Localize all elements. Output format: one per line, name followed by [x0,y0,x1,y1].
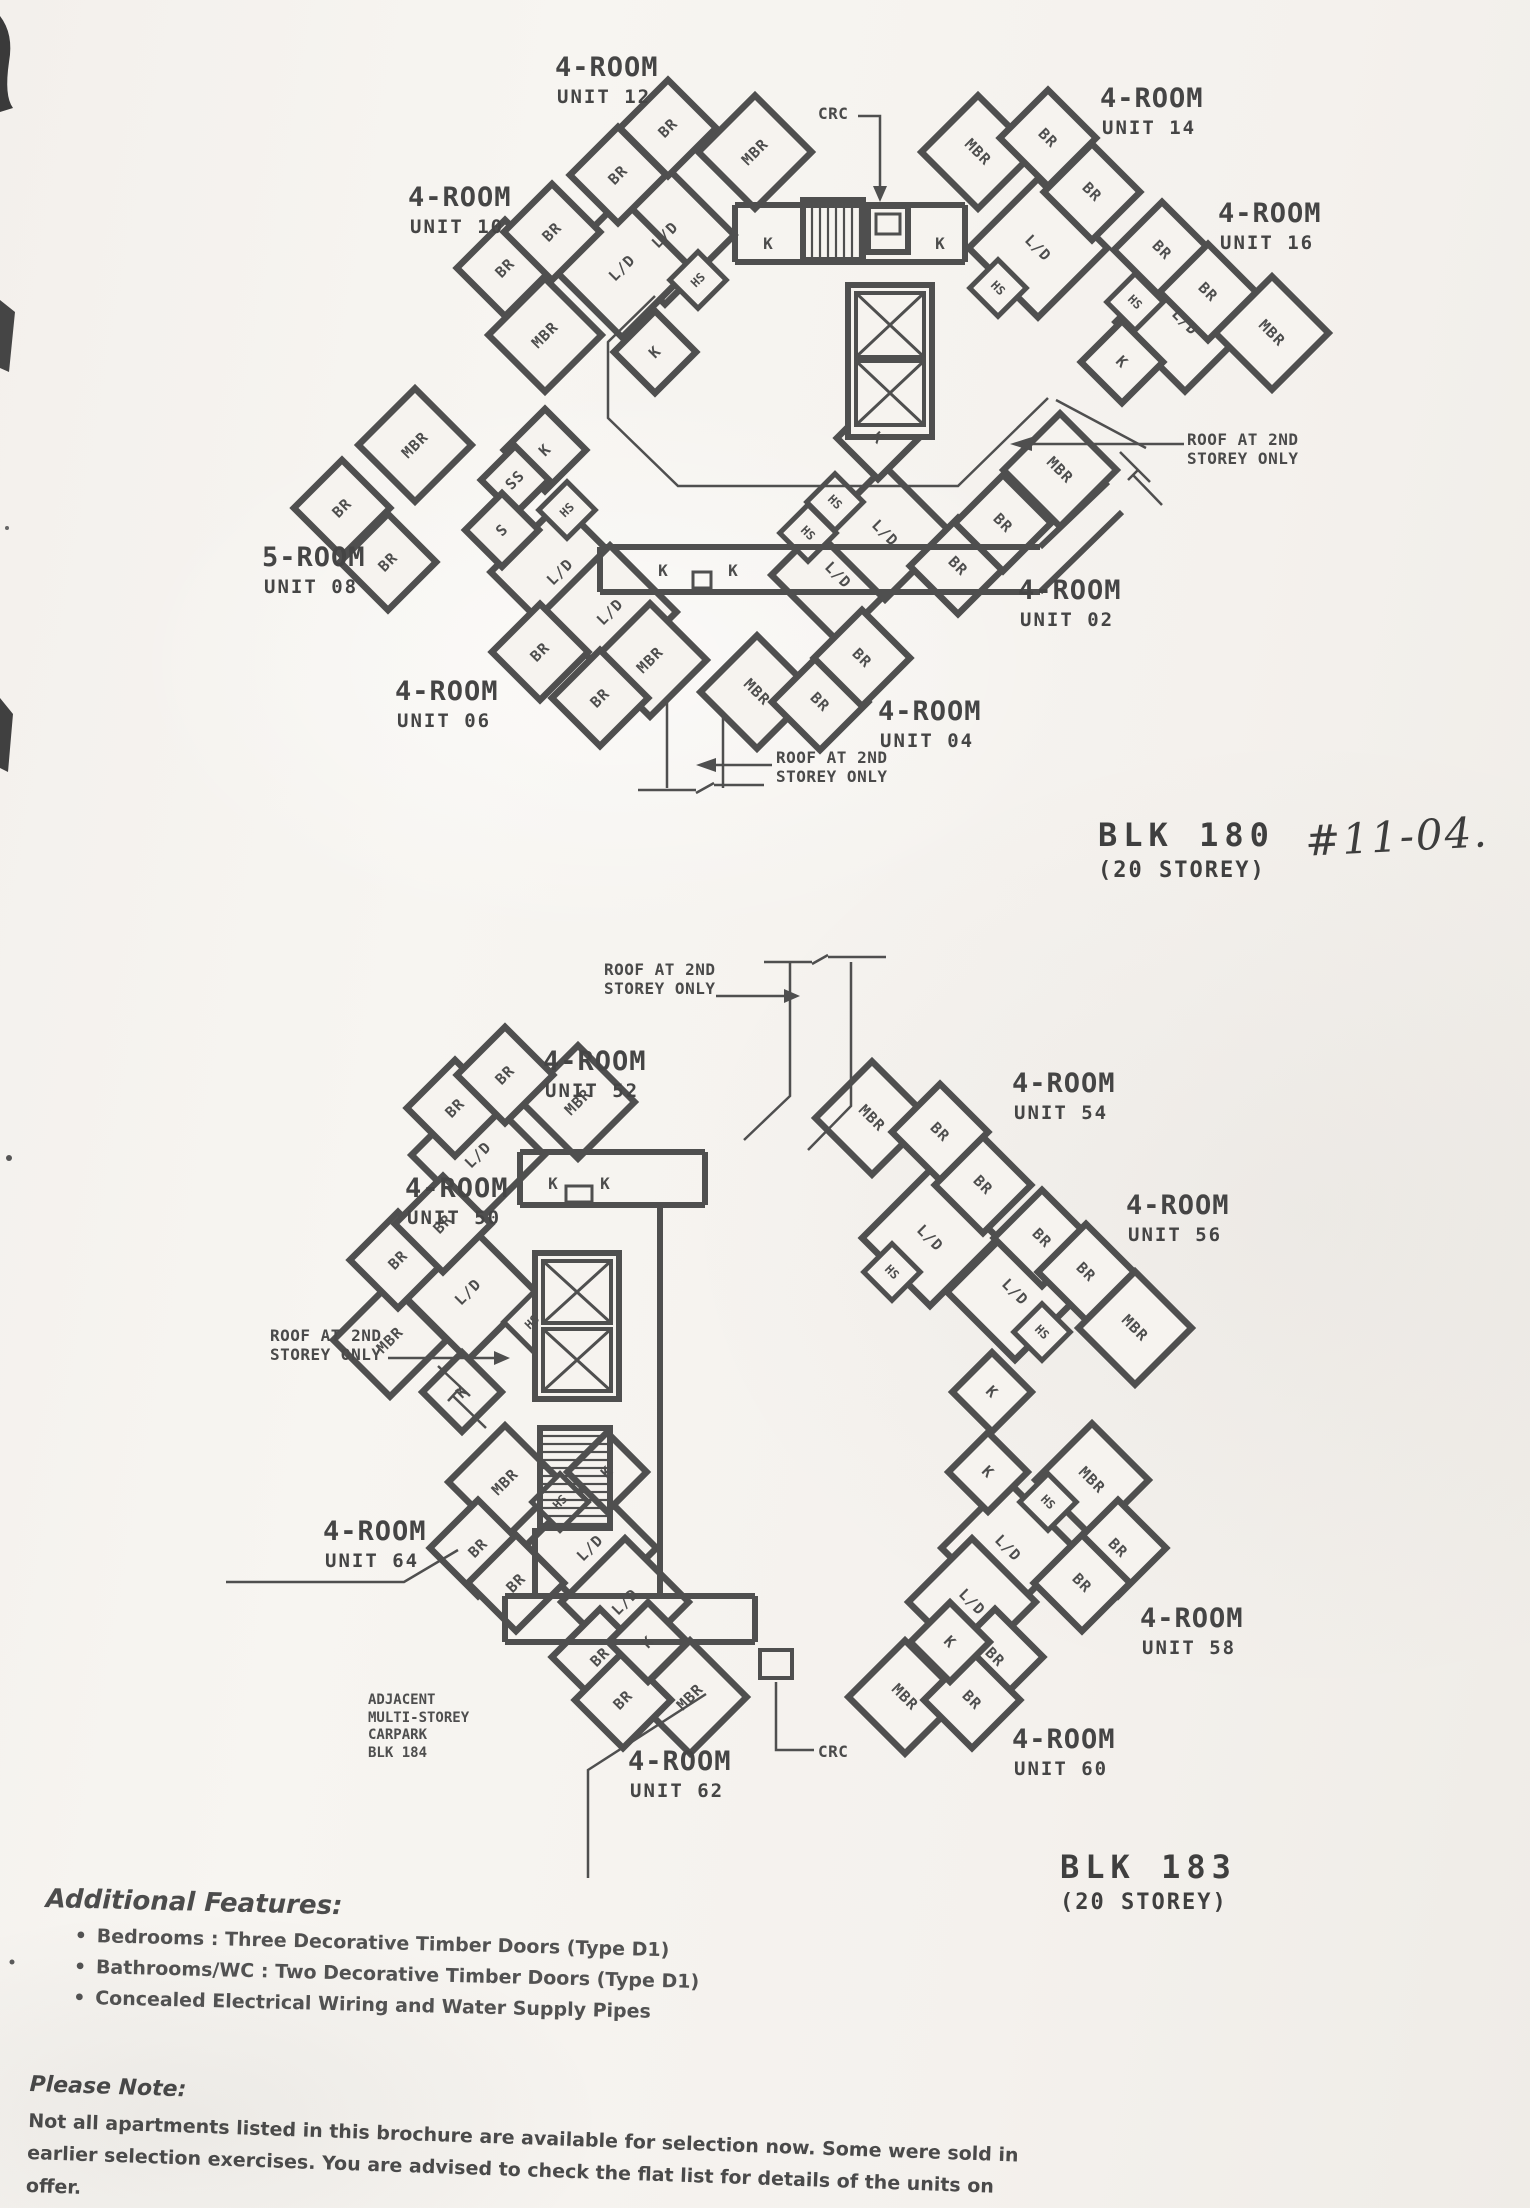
room-label: K [935,234,945,253]
unit-label-10: 4-ROOM UNIT 10 [408,182,512,238]
unit-type: 4-ROOM [543,1046,647,1077]
unit-type: 5-ROOM [262,542,366,573]
crc-label: CRC [818,1742,848,1761]
roof-note-line1: ROOF AT 2ND [604,960,715,979]
block-name: BLK 180 [1098,816,1275,854]
unit-type: 4-ROOM [1012,1724,1116,1755]
unit-type: 4-ROOM [408,182,512,213]
unit-label-60: 4-ROOM UNIT 60 [1012,1724,1116,1780]
unit-label-06: 4-ROOM UNIT 06 [395,676,499,732]
room-label: K [658,561,668,580]
unit-number: UNIT 52 [545,1080,647,1102]
unit-type: 4-ROOM [395,676,499,707]
unit-type: 4-ROOM [878,696,982,727]
unit-number: UNIT 54 [1014,1102,1116,1124]
room-label: K [548,1174,558,1193]
unit-type: 4-ROOM [1100,83,1204,114]
roof-note-left-blk183: ROOF AT 2ND STOREY ONLY [270,1326,381,1364]
unit-number: UNIT 08 [264,576,366,598]
carpark-note: ADJACENT MULTI-STOREY CARPARK BLK 184 [368,1692,469,1762]
block-caption-180: BLK 180 (20 STOREY) [1098,816,1275,883]
carpark-line: CARPARK [368,1727,469,1745]
unit-number: UNIT 02 [1020,609,1122,631]
floor-plans-drawing: BR BR MBR L/D BR BR MBR L/D HS K K K K K… [0,0,1530,2208]
unit-label-16: 4-ROOM UNIT 16 [1218,198,1322,254]
feature-item: Concealed Electrical Wiring and Water Su… [95,1987,699,2024]
unit-label-62: 4-ROOM UNIT 62 [628,1746,732,1802]
unit-type: 4-ROOM [1218,198,1322,229]
roof-note-bottom-blk180: ROOF AT 2ND STOREY ONLY [776,748,887,786]
unit-label-54: 4-ROOM UNIT 54 [1012,1068,1116,1124]
unit-number: UNIT 64 [325,1550,427,1572]
block-name: BLK 183 [1060,1848,1237,1886]
unit-number: UNIT 10 [410,216,512,238]
unit-label-64: 4-ROOM UNIT 64 [323,1516,427,1572]
unit-number: UNIT 12 [557,86,659,108]
roof-note-line2: STOREY ONLY [270,1345,381,1364]
roof-note-right-blk180: ROOF AT 2ND STOREY ONLY [1187,430,1298,468]
roof-note-line1: ROOF AT 2ND [270,1326,381,1345]
handwritten-unit-note: #11-04. [1304,807,1490,866]
room-label: K [600,1174,610,1193]
scan-artifacts [0,16,15,1965]
roof-note-line2: STOREY ONLY [1187,449,1298,468]
roof-note-line1: ROOF AT 2ND [776,748,887,767]
feature-item: Bedrooms : Three Decorative Timber Doors… [96,1925,700,1962]
roof-note-line2: STOREY ONLY [604,979,715,998]
block-storeys: (20 STOREY) [1098,858,1275,883]
unit-number: UNIT 50 [407,1207,509,1229]
carpark-line: BLK 184 [368,1745,469,1763]
unit-label-58: 4-ROOM UNIT 58 [1140,1603,1244,1659]
carpark-line: ADJACENT [368,1692,469,1710]
unit-label-04: 4-ROOM UNIT 04 [878,696,982,752]
additional-features-list: Bedrooms : Three Decorative Timber Doors… [43,1924,700,2024]
crc-annotation-top: CRC [818,104,848,123]
feature-item: Bathrooms/WC : Two Decorative Timber Doo… [96,1956,700,1993]
block-caption-183: BLK 183 (20 STOREY) [1060,1848,1237,1915]
block-storeys: (20 STOREY) [1060,1890,1237,1915]
crc-label: CRC [818,104,848,123]
unit-type: 4-ROOM [628,1746,732,1777]
unit-type: 4-ROOM [1126,1190,1230,1221]
unit-label-14: 4-ROOM UNIT 14 [1100,83,1204,139]
room-label: K [763,234,773,253]
unit-label-02: 4-ROOM UNIT 02 [1018,575,1122,631]
unit-type: 4-ROOM [555,52,659,83]
roof-note-line2: STOREY ONLY [776,767,887,786]
unit-number: UNIT 14 [1102,117,1204,139]
unit-number: UNIT 06 [397,710,499,732]
unit-type: 4-ROOM [405,1173,509,1204]
roof-note-top-blk183: ROOF AT 2ND STOREY ONLY [604,960,715,998]
additional-features: Additional Features: Bedrooms : Three De… [43,1884,701,2033]
unit-type: 4-ROOM [323,1516,427,1547]
scanned-brochure-page: BR BR MBR L/D BR BR MBR L/D HS K K K K K… [0,0,1530,2208]
unit-type: 4-ROOM [1140,1603,1244,1634]
unit-label-52: 4-ROOM UNIT 52 [543,1046,647,1102]
unit-number: UNIT 62 [630,1780,732,1802]
unit-label-50: 4-ROOM UNIT 50 [405,1173,509,1229]
unit-number: UNIT 04 [880,730,982,752]
roof-note-line1: ROOF AT 2ND [1187,430,1298,449]
crc-annotation-bottom: CRC [818,1742,848,1761]
unit-type: 4-ROOM [1018,575,1122,606]
unit-label-08: 5-ROOM UNIT 08 [262,542,366,598]
blk180-rooms [294,80,1329,750]
unit-number: UNIT 58 [1142,1637,1244,1659]
room-label: K [728,561,738,580]
unit-label-12: 4-ROOM UNIT 12 [555,52,659,108]
unit-number: UNIT 56 [1128,1224,1230,1246]
unit-number: UNIT 16 [1220,232,1322,254]
carpark-line: MULTI-STOREY [368,1710,469,1728]
unit-type: 4-ROOM [1012,1068,1116,1099]
unit-number: UNIT 60 [1014,1758,1116,1780]
unit-label-56: 4-ROOM UNIT 56 [1126,1190,1230,1246]
